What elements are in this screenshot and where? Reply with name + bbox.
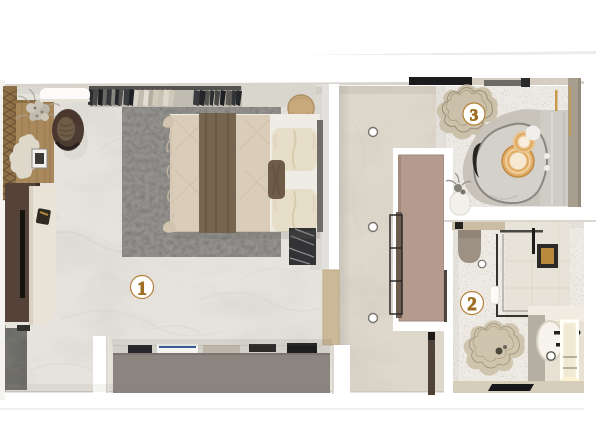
- svg-text:3: 3: [470, 106, 479, 125]
- svg-text:2: 2: [467, 294, 477, 315]
- svg-text:1: 1: [137, 279, 147, 300]
